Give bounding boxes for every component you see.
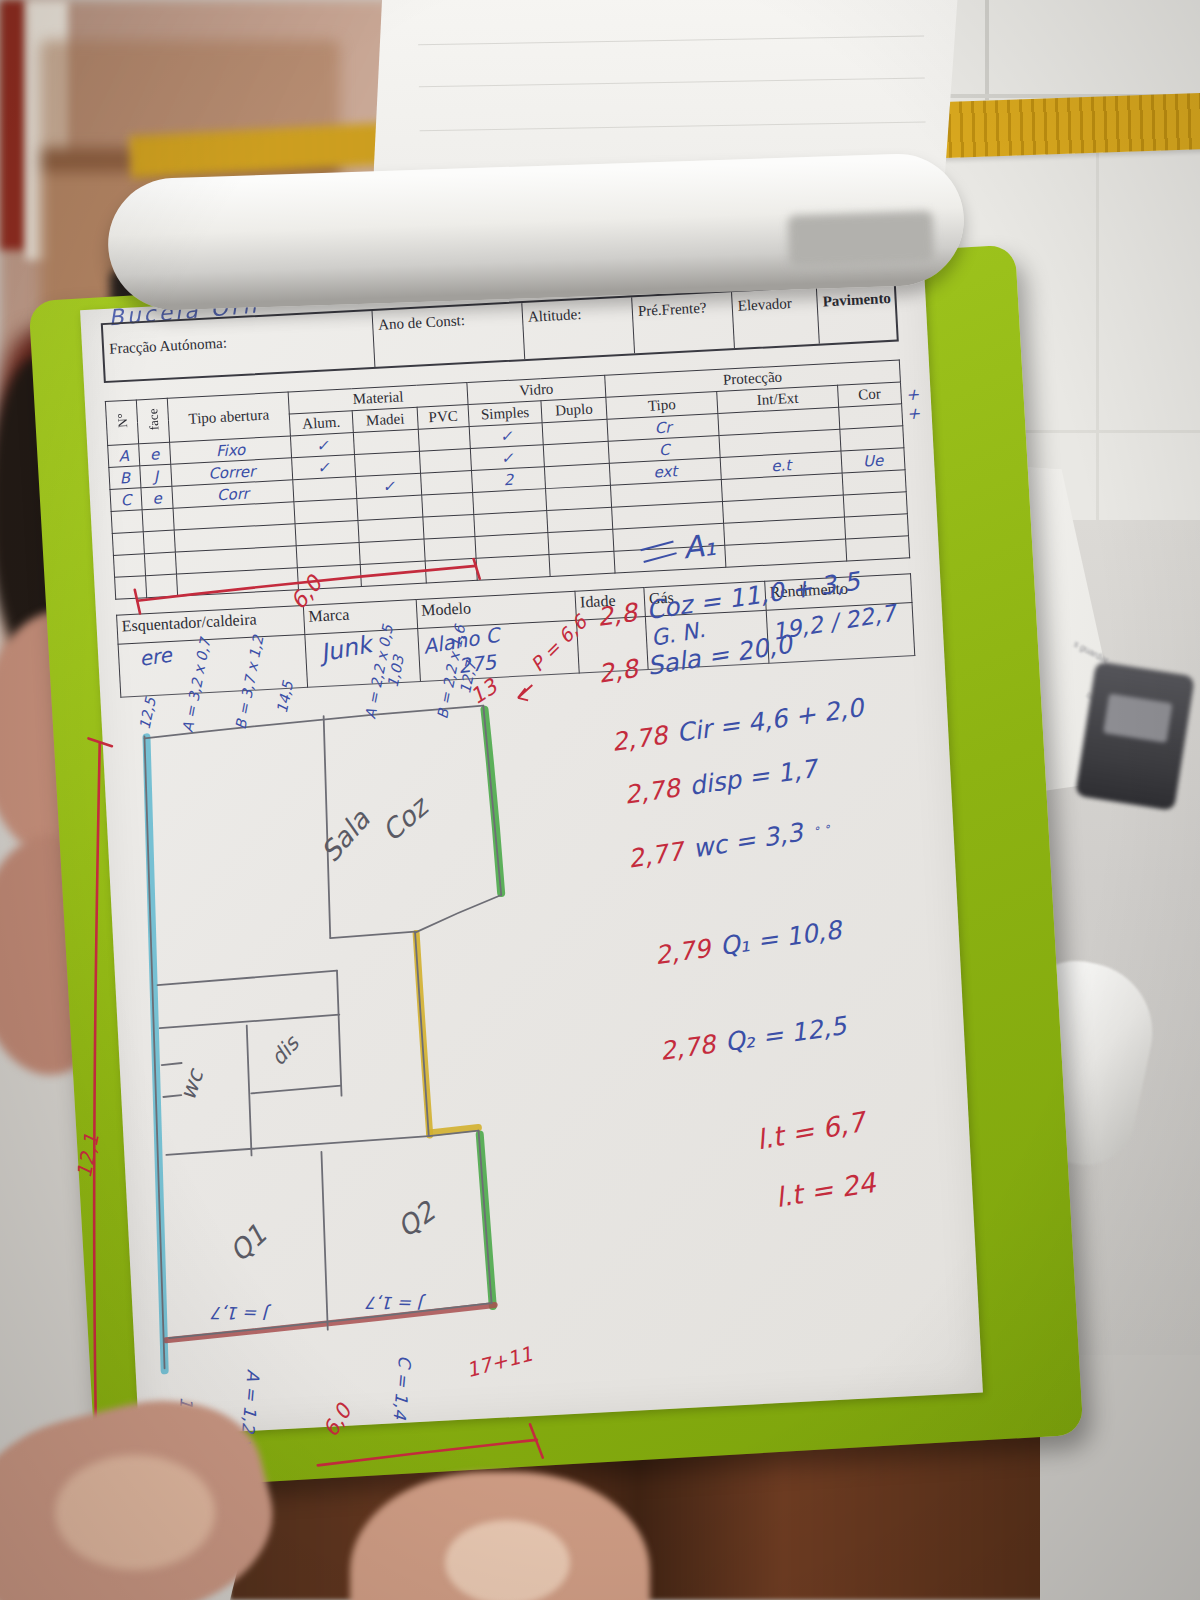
wc-superscript-marks: ˚ ˚: [812, 824, 831, 841]
cell-face: J: [140, 464, 172, 488]
room-label-q2: Q2: [391, 1195, 442, 1244]
equals-scribble: [640, 540, 676, 562]
top-dimension-texts: 12,5 A = 3,2 x 0,7 B = 3,7 x 1,2 14,5 A …: [132, 618, 483, 737]
dim-left-12-1: 12,1: [72, 1132, 104, 1180]
grey-smudge: [788, 211, 935, 268]
calc-line-wc: 2,77 wc = 3,3 ˚ ˚: [626, 813, 832, 873]
red-17-plus-11: 17+11: [464, 1342, 536, 1383]
dim-bottom-c-14: C = 1,4: [390, 1355, 416, 1422]
cell-face: e: [139, 442, 171, 466]
cell-no: B: [109, 466, 141, 490]
cell-pvc: [418, 427, 470, 452]
tile-grout-line: [1096, 150, 1099, 530]
room-label-coz: Coz: [376, 789, 436, 847]
knuckle-highlight: [55, 1455, 215, 1570]
window-label-q2: J = 1,7: [365, 1293, 427, 1314]
room-label-wc: wc: [175, 1065, 209, 1103]
calc-line-disp: 2,78 disp = 1,7: [623, 754, 819, 810]
calc-line-q1: 2,79 Q₁ = 10,8: [653, 915, 843, 970]
field-altitude: Altitude:: [522, 297, 635, 359]
ghost-table-line: [420, 121, 926, 131]
total-lt-24: l.t = 24: [773, 1167, 877, 1213]
window-label-q1: J = 1,7: [210, 1303, 272, 1324]
field-elevador: Elevador: [732, 288, 820, 348]
field-ano-const: Ano de Const:: [373, 303, 526, 367]
green-right-wall-lower: [480, 1134, 493, 1306]
col-face: face: [136, 398, 169, 444]
total-lt-67: l.t = 6,7: [754, 1106, 867, 1156]
field-pavimento-cobertura: Pavimento e Cobertura: [817, 284, 897, 344]
yellow-tile-border-right: [914, 93, 1200, 159]
room-label-disp: dis: [266, 1030, 305, 1070]
room-label-q1: Q1: [223, 1219, 272, 1268]
field-fraccao-autonoma: Fracção Autónoma:: [103, 311, 376, 381]
grey-phone-object: [1075, 661, 1195, 811]
dim-b-37x12: B = 3,7 x 1,2: [233, 633, 267, 730]
calc-line-cir: 2,78 Cir = 4,6 + 2,0: [610, 693, 865, 757]
room-labels: Sala Coz wc dis Q1 Q2: [159, 788, 459, 1270]
col-pvc: PVC: [417, 405, 469, 430]
margin-note-plus-plus: + +: [905, 384, 932, 423]
floor-plan-sketch: 12,5 A = 3,2 x 0,7 B = 3,7 x 1,2 14,5 A …: [36, 551, 663, 1500]
dim-bottom-6-0: 6,0: [318, 1399, 357, 1441]
dim-top-6-0: 6,0: [286, 570, 329, 614]
pencil-walls: [131, 705, 525, 1368]
cell-no: C: [110, 488, 142, 512]
field-pre-frente: Pré.Frente?: [632, 292, 735, 353]
cell-no: A: [108, 444, 140, 468]
room-label-sala: Sala: [315, 803, 377, 868]
cell-pvc: [419, 449, 471, 474]
cell-face: e: [141, 486, 173, 510]
phone-screen: [1103, 693, 1172, 743]
arrow-left-icon: [517, 685, 533, 701]
cyan-left-wall: [132, 737, 180, 1370]
col-numero: N°: [105, 400, 138, 446]
photo-of-clipboard-survey-form: { "form": { "title_scribble": "Bucela Or…: [0, 0, 1200, 1600]
dim-a-32x07: A = 3,2 x 0,7: [180, 635, 214, 733]
tile-grout-line: [985, 0, 989, 100]
thumb-nail: [445, 1520, 570, 1600]
red-perimeter: P = 6,6: [526, 609, 592, 675]
survey-form-sheet: Bucela Orh Fracção Autónoma: Ano de Cons…: [80, 266, 983, 1437]
crayon-walls: [131, 709, 525, 1370]
green-clipboard: Bucela Orh Fracção Autónoma: Ano de Cons…: [29, 245, 1084, 1492]
dim-12-5: 12,5: [136, 695, 159, 731]
yellow-mid-wall: [416, 933, 430, 1135]
red-wall-stripe: [0, 0, 26, 250]
ghost-table-line: [419, 77, 925, 87]
ghost-table-line: [418, 35, 924, 45]
dim-14-5: 14,5: [274, 679, 297, 715]
col-tipo-abertura: Tipo abertura: [167, 392, 290, 442]
calc-line-q2: 2,78 Q₂ = 12,5: [658, 1011, 848, 1066]
cell-pvc: [421, 471, 473, 496]
